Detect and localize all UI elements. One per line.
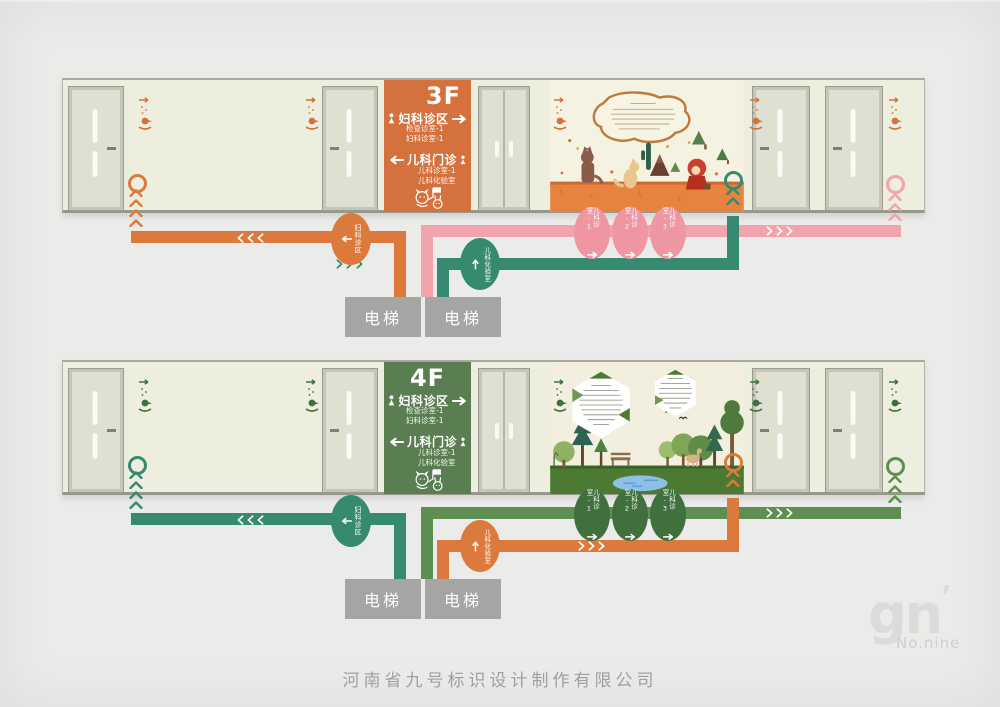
- chevrons-up-icon: [129, 471, 143, 509]
- route-node-gynecology: 妇科诊区: [331, 213, 371, 265]
- elevator-box: 电梯: [425, 579, 501, 619]
- directory-sign-4f: 4F 妇科诊区 检查诊室-1 妇科诊室-1 儿科门诊 儿科诊室-1 儿科化验室: [384, 362, 471, 494]
- arrow-right-icon: [587, 533, 598, 541]
- bird-decor-icon: [137, 378, 153, 414]
- elevator-box: 电梯: [345, 297, 421, 337]
- chevrons-left-icon: [237, 233, 264, 243]
- double-door: [479, 87, 529, 210]
- room-label: 检查诊室-1: [406, 406, 471, 416]
- mascot-illustration: [399, 183, 457, 211]
- chevrons-up-icon: [888, 193, 902, 221]
- chevrons-left-icon: [237, 515, 264, 525]
- person-icon: [460, 437, 466, 447]
- company-name: 河南省九号标识设计制作有限公司: [0, 666, 1000, 691]
- route-node-pediatric-room: 儿科诊室-3: [650, 207, 686, 259]
- bird-decor-icon: [887, 378, 903, 414]
- route-node-pediatric-lab: 儿科化验室: [460, 520, 500, 572]
- directory-sign-3f: 3F 妇科诊区 检查诊室-1 妇科诊室-1 儿科门诊 儿科诊室-1 儿科化验室: [384, 80, 471, 212]
- room-label: 儿科诊室-1: [418, 166, 471, 176]
- room-label: 妇科诊室-1: [406, 134, 471, 144]
- mural-forest: [548, 362, 746, 494]
- studio-logo: gn’ No.nine: [868, 582, 960, 652]
- arrow-right-icon: [663, 251, 674, 259]
- route-node-pediatric-room: 儿科诊室-1: [574, 207, 610, 259]
- route-end-marker: [724, 453, 743, 472]
- floor-label: 3F: [426, 82, 461, 110]
- floor-label: 4F: [384, 364, 471, 392]
- arrow-right-icon: [452, 114, 467, 124]
- route-end-marker: [886, 175, 905, 194]
- arrow-right-icon: [663, 533, 674, 541]
- arrow-right-icon: [587, 251, 598, 259]
- route-end-marker: [886, 457, 905, 476]
- bird-decor-icon: [748, 96, 764, 132]
- chevrons-right-icon: [766, 508, 793, 518]
- room-label: 儿科诊室-1: [418, 448, 471, 458]
- chevrons-up-icon: [888, 475, 902, 503]
- door: [69, 87, 123, 210]
- arrow-right-icon: [452, 396, 467, 406]
- elevator-box: 电梯: [425, 297, 501, 337]
- route-line: [727, 498, 739, 552]
- route-node-pediatric-room: 儿科诊室-1: [574, 489, 610, 541]
- arrow-up-icon: [472, 541, 480, 552]
- bird-decor-icon: [748, 378, 764, 414]
- bird-decor-icon: [137, 96, 153, 132]
- bird-decor-icon: [552, 96, 568, 132]
- elevator-box: 电梯: [345, 579, 421, 619]
- arrow-up-icon: [472, 259, 480, 270]
- route-node-pediatric-lab: 儿科化验室: [460, 238, 500, 290]
- route-line: [394, 513, 406, 579]
- arrow-right-icon: [625, 251, 636, 259]
- arrow-left-icon: [341, 517, 352, 525]
- door: [323, 369, 377, 492]
- chevrons-right-icon: [578, 541, 605, 551]
- route-node-pediatric-room: 儿科诊室-2: [612, 489, 648, 541]
- room-label: 检查诊室-1: [406, 124, 471, 134]
- route-end-marker: [724, 171, 743, 190]
- route-node-gynecology: 妇科诊区: [331, 495, 371, 547]
- arrow-left-icon: [389, 437, 404, 447]
- floor-section-3f: 3F 妇科诊区 检查诊室-1 妇科诊室-1 儿科门诊 儿科诊室-1 儿科化验室: [0, 78, 1000, 340]
- route-line: [727, 216, 739, 270]
- bird-decor-icon: [887, 96, 903, 132]
- person-icon: [388, 113, 395, 124]
- door: [323, 87, 377, 210]
- logo-mark: gn’: [868, 582, 960, 642]
- logo-subtext: No.nine: [896, 634, 960, 652]
- arrow-left-icon: [341, 235, 352, 243]
- bird-decor-icon: [552, 378, 568, 414]
- bird-decor-icon: [304, 96, 320, 132]
- person-icon: [388, 395, 395, 406]
- chevrons-up-icon: [129, 189, 143, 227]
- route-node-pediatric-room: 儿科诊室-2: [612, 207, 648, 259]
- arrow-left-icon: [389, 155, 404, 165]
- room-label: 妇科诊室-1: [406, 416, 471, 426]
- door: [69, 369, 123, 492]
- arrow-right-icon: [625, 533, 636, 541]
- route-line: [394, 231, 406, 297]
- mascot-illustration: [399, 465, 457, 493]
- wall-elevation-3f: 3F 妇科诊区 检查诊室-1 妇科诊室-1 儿科门诊 儿科诊室-1 儿科化验室: [62, 78, 925, 213]
- chevrons-right-icon: [766, 226, 793, 236]
- route-node-pediatric-room: 儿科诊室-3: [650, 489, 686, 541]
- double-door: [479, 369, 529, 492]
- door: [826, 369, 882, 492]
- bird-decor-icon: [304, 378, 320, 414]
- floor-section-4f: 4F 妇科诊区 检查诊室-1 妇科诊室-1 儿科门诊 儿科诊室-1 儿科化验室: [0, 360, 1000, 622]
- mural-red-riding-hood: [548, 80, 746, 212]
- door: [826, 87, 882, 210]
- person-icon: [460, 155, 466, 165]
- wall-elevation-4f: 4F 妇科诊区 检查诊室-1 妇科诊室-1 儿科门诊 儿科诊室-1 儿科化验室: [62, 360, 925, 495]
